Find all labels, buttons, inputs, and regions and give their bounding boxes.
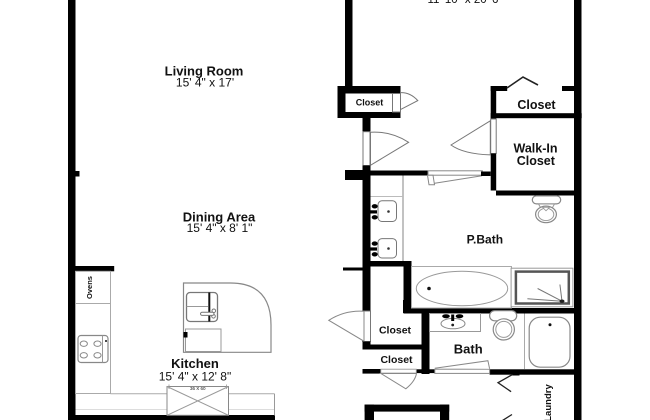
svg-text:11' 10" x 20' 6": 11' 10" x 20' 6" xyxy=(427,0,502,6)
svg-text:15' 4" x 17': 15' 4" x 17' xyxy=(176,76,234,90)
svg-text:Closet: Closet xyxy=(517,98,556,112)
svg-text:Closet: Closet xyxy=(380,354,413,366)
svg-text:Laundry: Laundry xyxy=(543,384,554,420)
svg-text:Closet: Closet xyxy=(356,98,384,108)
svg-text:Closet: Closet xyxy=(379,325,412,337)
svg-text:36 X 60: 36 X 60 xyxy=(190,386,206,391)
svg-text:Bath: Bath xyxy=(454,341,483,356)
svg-text:Closet: Closet xyxy=(517,154,556,168)
svg-text:15' 4" x 12' 8": 15' 4" x 12' 8" xyxy=(159,370,231,384)
svg-text:Ovens: Ovens xyxy=(85,276,94,299)
svg-text:15' 4" x 8' 1": 15' 4" x 8' 1" xyxy=(187,221,253,235)
svg-text:P.Bath: P.Bath xyxy=(467,233,503,247)
